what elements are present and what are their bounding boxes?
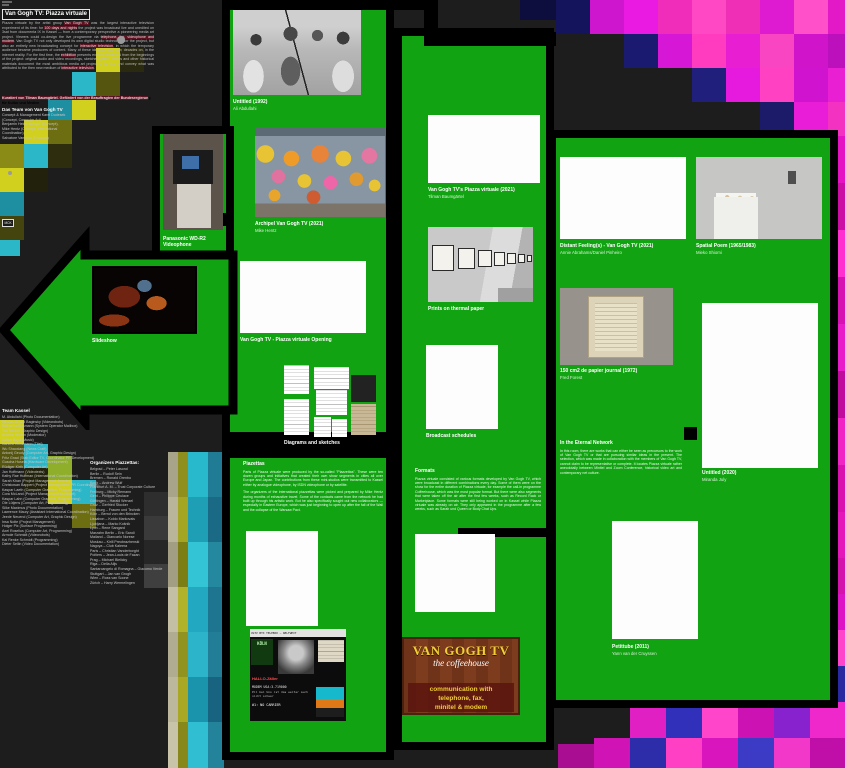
print-frame: [507, 253, 516, 264]
print-frame: [432, 245, 454, 271]
mosaic-cell: [828, 34, 845, 68]
highlighted-text: Kuratiert von Tilman Baumgärtel. Geförde…: [2, 96, 148, 100]
text-piazettas: Piazettas Parts of Piazza virtuale were …: [243, 461, 383, 515]
mosaic-cell: [726, 0, 760, 34]
sketch-doc: [314, 367, 349, 389]
text-formats: Formats Piazza virtuale consisted of var…: [415, 468, 541, 515]
mosaic-cell: [760, 68, 794, 102]
mosaic-cell: [666, 738, 702, 768]
mosaic-cell: [178, 632, 188, 677]
corner-mark-1: [2, 1, 12, 3]
mosaic-cell: [168, 677, 178, 722]
artist-forest: Fred Forest: [560, 375, 582, 380]
crt-screen: KÖLN: [251, 639, 273, 665]
modem-text: MODEM USA:3-719000: [252, 685, 287, 689]
poster-band-line2: telephone, fax,: [408, 694, 514, 703]
mosaic-cell: [178, 587, 188, 632]
mosaic-cell: [726, 34, 760, 68]
team-header: Das Team von Van Gogh TV: [2, 107, 63, 113]
mosaic-cell: [590, 0, 624, 34]
face-photo: [278, 640, 314, 674]
highlighted-text: Van Gogh TV: [64, 21, 88, 25]
mosaic-cell: [692, 68, 726, 102]
wall-top-bar: [222, 0, 434, 10]
caption-distant: Distant Feeling(s) - Van Gogh TV (2021): [560, 243, 653, 249]
print-frame: [494, 252, 505, 266]
mosaic-cell: [178, 542, 188, 587]
mosaic-cell: [794, 0, 828, 34]
mosaic-cell: [794, 68, 828, 102]
artist-distant: Annie Abrahams/Daniel Pinheiro: [560, 250, 622, 255]
videophone-screen: [182, 156, 199, 169]
pedestal: [177, 180, 211, 228]
poster-title: VAN GOGH TV: [404, 644, 518, 658]
sketch-doc: [314, 417, 331, 437]
wall-object: [788, 171, 796, 184]
framed-page: [588, 296, 644, 358]
team-kassel-header: Team Kassel: [2, 408, 30, 414]
piazettas-header: Piazettas: [243, 461, 383, 467]
hallo-text: HALLO-Zäller: [252, 676, 278, 681]
mosaic-cell: [760, 34, 794, 68]
list-item: Salvatore Vanasco (Concept): [2, 136, 65, 141]
caption-spatial: Spatial Poem (1965/1983): [696, 243, 756, 249]
funding-note: Kuratiert von Tilman Baumgärtel. Geförde…: [2, 96, 152, 105]
eternal-header: In the Eternal Network: [560, 440, 682, 446]
sketch-doc: [316, 390, 347, 415]
mosaic-cell: [624, 0, 658, 34]
mosaic-cell: [24, 144, 48, 168]
mosaic-cell: [168, 587, 178, 632]
mosaic-cell: [178, 497, 188, 542]
artist-petittube: Yann van der Cruyssen: [612, 651, 657, 656]
mosaic-cell: [178, 452, 188, 497]
mosaic-cell: [178, 722, 188, 768]
caption-archipel: Archipel Van Gogh TV (2021): [255, 221, 323, 227]
list-item: Zürich – Harry Wermelingen: [90, 581, 162, 586]
organizers-header: Organizers Piazzettas:: [90, 460, 139, 466]
sketch-doc: [284, 399, 309, 435]
mosaic-cell: [658, 0, 692, 34]
mosaic-cell: [188, 452, 208, 497]
mosaic-cell: [794, 34, 828, 68]
caption-petittube: Petittube (2011): [612, 644, 649, 650]
organizers-list: Belgrad – Peter LasondBerlin – Rudolf Se…: [90, 467, 162, 585]
poster-btx-collage[interactable]: VGTV BTX TELEBOX — WELTWEIT KÖLN HALLO-Z…: [250, 629, 346, 721]
mosaic-cell: [0, 192, 24, 216]
mosaic-cell: [624, 34, 658, 68]
intro-paragraph: Piazza virtuale by the artist group Van …: [2, 21, 154, 71]
mosaic-cell: [658, 34, 692, 68]
mosaic-cell: [738, 738, 774, 768]
page-title: Van Gogh TV: Piazza virtuale: [2, 9, 90, 20]
plain-text: .: [94, 66, 95, 70]
wall-top-elbow-h: [424, 32, 556, 46]
photo-untitled-1992[interactable]: [233, 10, 361, 95]
caption-opening: Van Gogh TV - Piazza virtuale Opening: [240, 337, 332, 343]
caption-untitled-1992: Untitled (1992): [233, 99, 267, 105]
sketch-doc-dark: [351, 375, 376, 402]
gray-dot: [117, 36, 125, 44]
caption-book: Van Gogh TV's Piazza virtuale (2021): [428, 187, 515, 193]
caption-thermal: Prints on thermal paper: [428, 306, 484, 312]
artwork-book[interactable]: [428, 115, 540, 183]
highlighted-text: interactive television: [80, 44, 113, 48]
poster-band: communication with telephone, fax, minit…: [408, 683, 514, 712]
artist-untitled-1992: Ali Abdullahi: [233, 106, 256, 111]
mosaic-cell: [810, 738, 845, 768]
gallery-floor: [498, 288, 533, 302]
photo-forest-journal[interactable]: [560, 288, 673, 365]
poster-coffeehouse[interactable]: VAN GOGH TV the coffeehouse communicatio…: [402, 637, 520, 715]
mck-badge: MCK: [2, 219, 14, 227]
mosaic-cell: [188, 542, 208, 587]
mosaic-cell: [168, 542, 178, 587]
photo-panasonic-videophone[interactable]: [163, 134, 223, 230]
mosaic-cell: [558, 744, 594, 768]
poster-band-line3: minitel & modem: [408, 703, 514, 712]
mosaic-cell: [828, 68, 845, 102]
test-pattern-screen: [316, 687, 344, 717]
mosaic-cell: [692, 0, 726, 34]
highlighted-text: exhibition: [61, 53, 76, 57]
poster-band-line1: communication with: [408, 685, 514, 694]
mosaic-cell: [774, 738, 810, 768]
mosaic-cell: [556, 0, 590, 34]
team-kassel-list: M. Abdullahi (Photo Documentation)Nicola…: [2, 415, 98, 547]
mosaic-cell: [630, 738, 666, 768]
caption-schedules: Broadcast schedules: [426, 433, 476, 439]
caption-forest: 150 cm2 de papier journal (1972): [560, 368, 637, 374]
sketch-doc-tan: [351, 404, 376, 435]
artist-july: Miranda July: [702, 477, 726, 482]
mosaic-cell: [168, 632, 178, 677]
mosaic-cell: [726, 68, 760, 102]
mosaic-cell: [188, 587, 208, 632]
artist-archipel: Mike Hentz: [255, 228, 277, 233]
mosaic-cell: [24, 168, 48, 192]
caption-panasonic-2: Videophone: [163, 242, 192, 248]
print-frame: [478, 250, 492, 267]
mosaic-cell: [188, 632, 208, 677]
artwork-distant-feelings[interactable]: [560, 157, 686, 239]
artist-spatial: Mieko Shiomi: [696, 250, 722, 255]
mosaic-cell: [188, 497, 208, 542]
mosaic-cell: [0, 144, 24, 168]
collage-diagrams[interactable]: [281, 361, 377, 438]
mosaic-cell: [828, 0, 845, 34]
print-frame: [518, 254, 525, 263]
mosaic-cell: [168, 497, 178, 542]
print-frame: [527, 255, 532, 262]
artist-book: Tilman Baumgärtel: [428, 194, 464, 199]
piazettas-p1: Parts of Piazza virtuale were produced b…: [243, 470, 383, 488]
poster-subtitle: the coffeehouse: [404, 658, 518, 668]
terminal-line: Pil bei Uns ist das weiter auch nicht sc…: [252, 691, 312, 698]
sketch-doc: [284, 365, 309, 394]
highlighted-text: 100 days and nights: [44, 26, 77, 30]
plain-text: Piazza virtuale by the artist group: [2, 21, 64, 25]
mosaic-cell: [188, 722, 208, 768]
caption-diagrams: Diagrams and sketches: [284, 440, 340, 446]
mosaic-cell: [178, 677, 188, 722]
caption-july: Untitled (2020): [702, 470, 736, 476]
list-item: Benjamin Heidersberger (Concept),: [2, 122, 65, 127]
photo-slideshow[interactable]: [92, 266, 197, 334]
list-item: Concept & Management Karel Dudesek: [2, 113, 65, 118]
formats-p1: Piazza virtuale consisted of various for…: [415, 477, 541, 512]
no-carrier-text: #1: NO CARRIER: [252, 703, 281, 707]
artwork-miranda-july[interactable]: [702, 303, 818, 468]
mosaic-cell: [760, 0, 794, 34]
mosaic-cell: [96, 72, 120, 96]
artwork-opening-video[interactable]: [240, 261, 366, 333]
sketch-doc: [332, 419, 347, 437]
artwork-schedules[interactable]: [426, 345, 498, 429]
eternal-p1: In this room, there are works that can e…: [560, 449, 682, 475]
caption-slideshow: Slideshow: [92, 338, 117, 344]
document-scrap: [318, 640, 344, 662]
wall-pillar-2: [684, 427, 697, 440]
artwork-blank-left[interactable]: [246, 531, 318, 626]
list-item: Santarcangelo di Romagna – Giacomo Verde: [90, 567, 162, 572]
artwork-blank-right[interactable]: [415, 534, 495, 612]
highlighted-text: interactive television: [61, 66, 93, 70]
mosaic-cell: [0, 168, 24, 192]
team-list: Concept & Management Karel Dudesek(Conce…: [2, 113, 65, 140]
piazettas-p2: The organizers of the international piaz…: [243, 490, 383, 512]
formats-header: Formats: [415, 468, 541, 474]
list-item: Dieter Sellin (Video Documentation): [2, 542, 98, 547]
mosaic-cell: [72, 72, 96, 96]
mosaic-cell: [702, 738, 738, 768]
newspaper-page: [595, 303, 637, 351]
photo-archipel[interactable]: [255, 127, 385, 217]
mosaic-cell: [48, 144, 72, 168]
virtual-exhibition-map: Van Gogh TV: Piazza virtuale Piazza virt…: [0, 0, 845, 768]
print-frame: [458, 248, 475, 269]
pedestal: [714, 197, 758, 239]
photo-spatial-poem[interactable]: [696, 157, 822, 239]
mosaic-cell: [168, 722, 178, 768]
videophone-device: [173, 150, 213, 184]
corner-mark-2: [2, 4, 9, 6]
photo-thermal-prints[interactable]: [428, 227, 533, 302]
mosaic-cell: [692, 34, 726, 68]
mosaic-cell: [594, 738, 630, 768]
gray-dot-small: [8, 171, 12, 175]
mosaic-cell: [168, 452, 178, 497]
mosaic-cell: [188, 677, 208, 722]
text-eternal-network: In the Eternal Network In this room, the…: [560, 440, 682, 478]
artwork-petittube[interactable]: [612, 521, 698, 639]
poster-top-strip: VGTV BTX TELEBOX — WELTWEIT: [250, 629, 346, 637]
mosaic-cell: [520, 0, 556, 20]
